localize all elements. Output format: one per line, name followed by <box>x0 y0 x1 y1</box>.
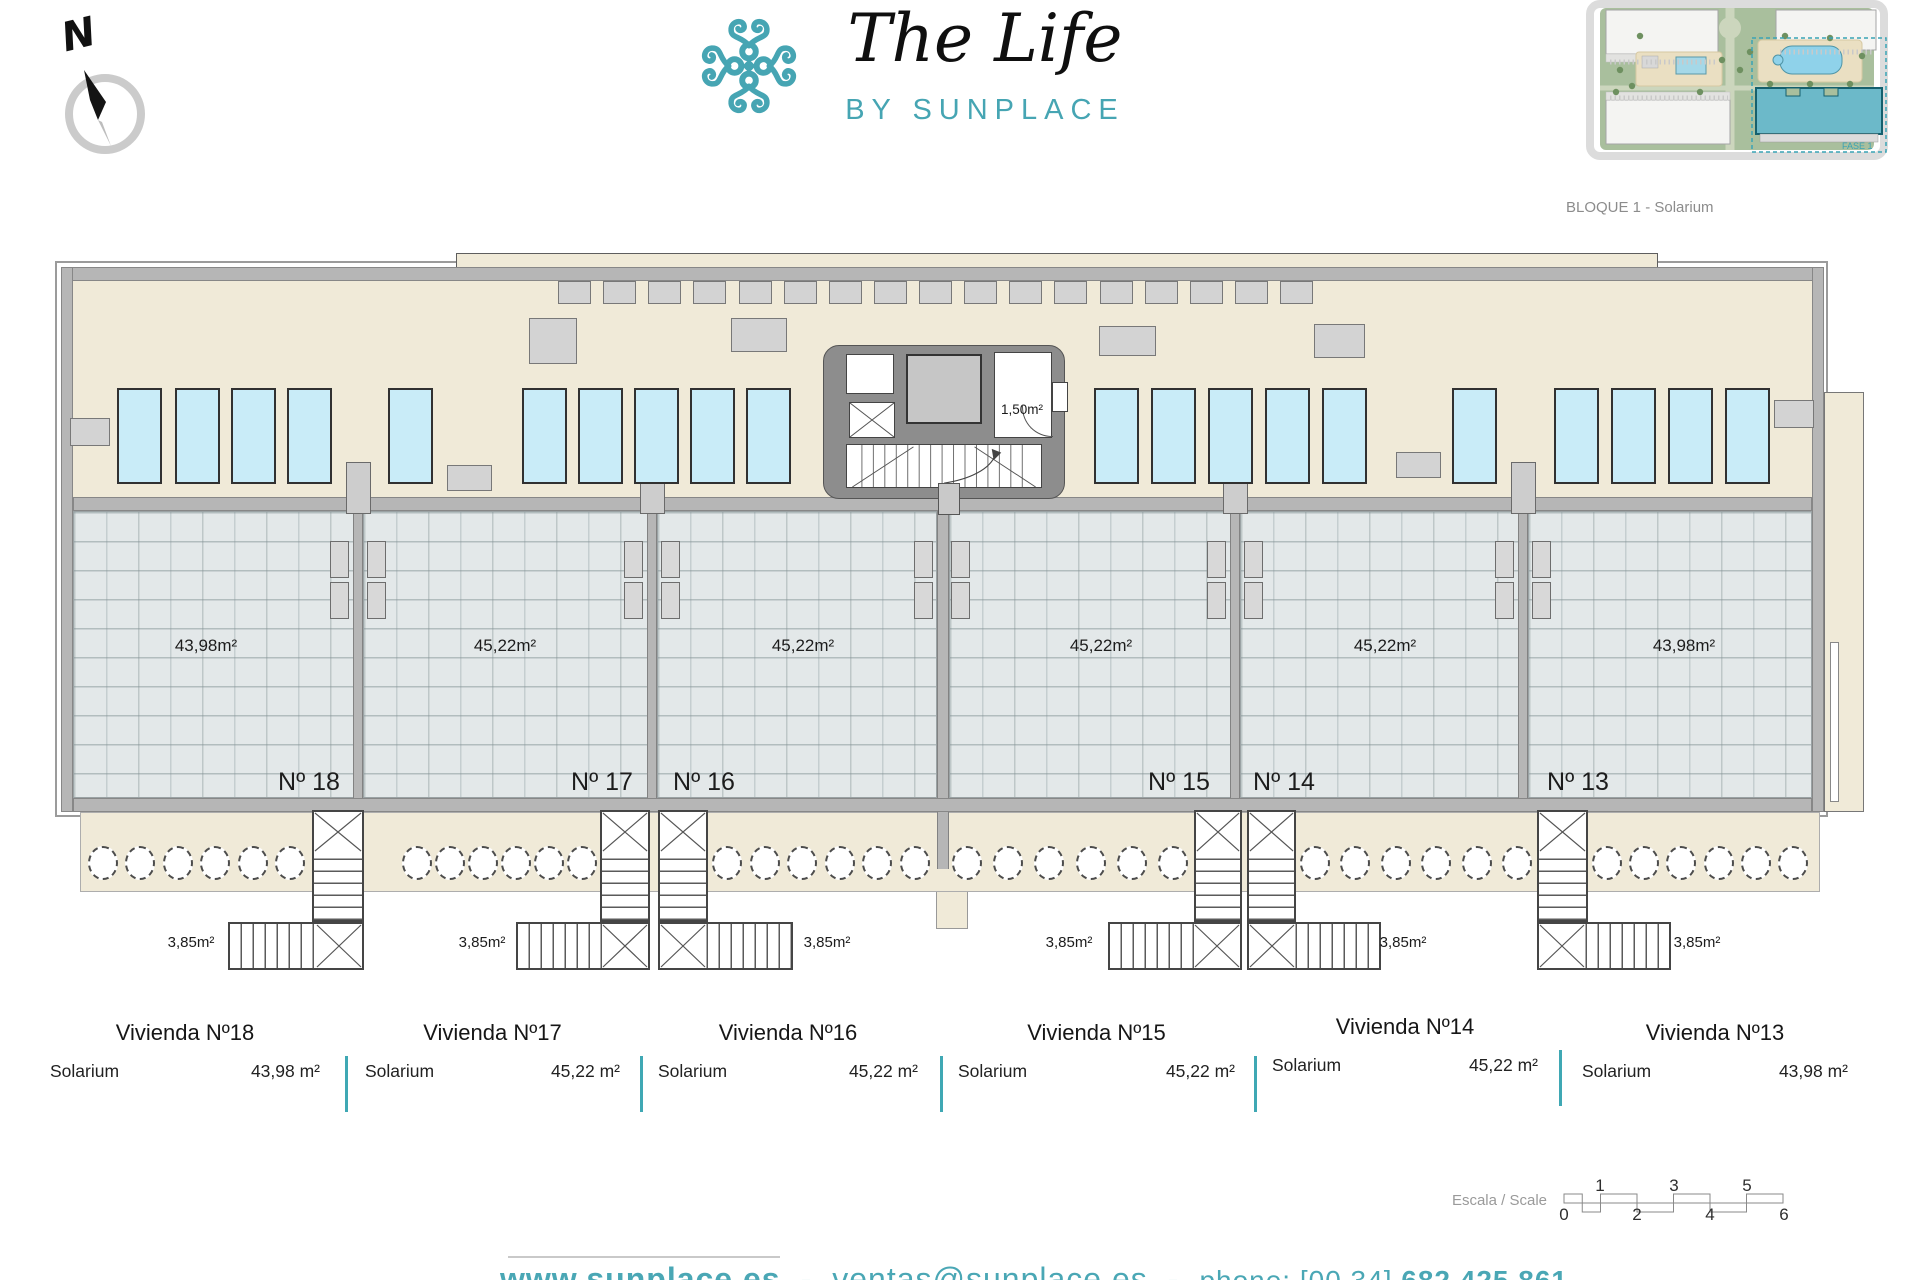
party-wall-18-17 <box>353 511 363 798</box>
email-text: ventas@sunplace.es <box>832 1261 1148 1280</box>
stair-15-area-label: 3,85m² <box>1009 934 1129 951</box>
plan-sheet: N The Life BY SUNPLACE <box>0 0 1920 1280</box>
party-wall-17-16 <box>647 511 657 798</box>
row-value: 45,22 m² <box>551 1061 620 1082</box>
core-shaft <box>849 402 895 438</box>
column-title: Vivienda Nº14 <box>1262 1014 1548 1040</box>
summary-column-13: Vivienda Nº13 Solarium43,98 m² <box>1572 1020 1858 1082</box>
footer-separator: - <box>1168 1261 1180 1280</box>
column-divider <box>640 1056 643 1112</box>
roof-vents-row <box>558 281 1313 304</box>
scale-label: Escala / Scale <box>1437 1192 1547 1209</box>
party-wall-14-13 <box>1518 511 1528 798</box>
scale-tick: 2 <box>1632 1205 1641 1225</box>
unit-14-number: Nº 14 <box>1214 768 1354 797</box>
phase-label: FASE 1 <box>1842 141 1873 151</box>
summary-column-15: Vivienda Nº15 Solarium45,22 m² <box>948 1020 1245 1082</box>
party-wall-central <box>937 497 949 869</box>
row-label: Solarium <box>1272 1055 1341 1076</box>
party-wall-15-14 <box>1230 511 1240 798</box>
unit-16-number: Nº 16 <box>634 768 774 797</box>
column-divider <box>940 1056 943 1112</box>
core-room <box>846 354 894 394</box>
column-divider <box>345 1056 348 1112</box>
compass-icon: N <box>48 4 158 164</box>
footer-rule <box>508 1256 780 1258</box>
column-divider <box>1254 1056 1257 1112</box>
unit-13-number: Nº 13 <box>1508 768 1648 797</box>
row-label: Solarium <box>958 1061 1027 1082</box>
site-plan-caption: BLOQUE 1 - Solarium <box>1566 199 1714 216</box>
row-label: Solarium <box>658 1061 727 1082</box>
stair-17-area-label: 3,85m² <box>422 934 542 951</box>
wall-right <box>1812 267 1824 812</box>
row-value: 43,98 m² <box>1779 1061 1848 1082</box>
row-label: Solarium <box>50 1061 119 1082</box>
row-label: Solarium <box>1582 1061 1651 1082</box>
footer-separator: - <box>801 1261 813 1280</box>
column-title: Vivienda Nº18 <box>40 1020 330 1046</box>
row-value: 45,22 m² <box>1469 1055 1538 1076</box>
summary-column-16: Vivienda Nº16 Solarium45,22 m² <box>648 1020 928 1082</box>
column-title: Vivienda Nº13 <box>1572 1020 1858 1046</box>
scale-tick: 4 <box>1705 1205 1714 1225</box>
scale-tick: 5 <box>1742 1176 1751 1196</box>
column-title: Vivienda Nº16 <box>648 1020 928 1046</box>
summary-column-17: Vivienda Nº17 Solarium45,22 m² <box>355 1020 630 1082</box>
summary-column-14: Vivienda Nº14 Solarium45,22 m² <box>1262 1014 1548 1076</box>
unit-16-area-label: 45,22m² <box>733 636 873 656</box>
row-value: 45,22 m² <box>1166 1061 1235 1082</box>
unit-18-number: Nº 18 <box>239 768 379 797</box>
row-value: 43,98 m² <box>251 1061 320 1082</box>
column-title: Vivienda Nº15 <box>948 1020 1245 1046</box>
unit-13-area-label: 43,98m² <box>1614 636 1754 656</box>
column-title: Vivienda Nº17 <box>355 1020 630 1046</box>
storage-area-label: 1,50m² <box>982 402 1062 417</box>
wall-top <box>61 267 1824 281</box>
scale-tick: 3 <box>1669 1176 1678 1196</box>
stair-18-area-label: 3,85m² <box>131 934 251 951</box>
unit-18-area-label: 43,98m² <box>136 636 276 656</box>
column-divider <box>1559 1050 1562 1106</box>
stair-core: 1,50m² <box>823 345 1065 499</box>
scale-tick: 0 <box>1559 1205 1568 1225</box>
summary-column-18: Vivienda Nº18 Solarium43,98 m² <box>40 1020 330 1082</box>
phone-text: phone: [00 34] 682 425 861 <box>1199 1265 1568 1280</box>
scale-tick: 6 <box>1779 1205 1788 1225</box>
elevator <box>906 354 982 424</box>
footer: www.sunplace.es - ventas@sunplace.es - p… <box>500 1261 1568 1280</box>
unit-15-area-label: 45,22m² <box>1031 636 1171 656</box>
side-terrace-wall <box>1830 642 1839 802</box>
row-value: 45,22 m² <box>849 1061 918 1082</box>
stair-16-area-label: 3,85m² <box>767 934 887 951</box>
scale-tick: 1 <box>1595 1176 1604 1196</box>
core-door-block <box>938 483 960 515</box>
unit-17-area-label: 45,22m² <box>435 636 575 656</box>
stair-14-area-label: 3,85m² <box>1343 934 1463 951</box>
logo-subtitle: BY SUNPLACE <box>805 94 1165 127</box>
logo-title: The Life <box>805 0 1165 92</box>
website-text: www.sunplace.es <box>500 1261 781 1280</box>
unit-14-area-label: 45,22m² <box>1315 636 1455 656</box>
wall-left <box>61 267 73 812</box>
site-plan-thumbnail: FASE 1 <box>1580 0 1892 170</box>
core-stairs <box>846 444 1042 488</box>
logo-knot-icon <box>698 4 800 128</box>
stair-13-area-label: 3,85m² <box>1637 934 1757 951</box>
row-label: Solarium <box>365 1061 434 1082</box>
